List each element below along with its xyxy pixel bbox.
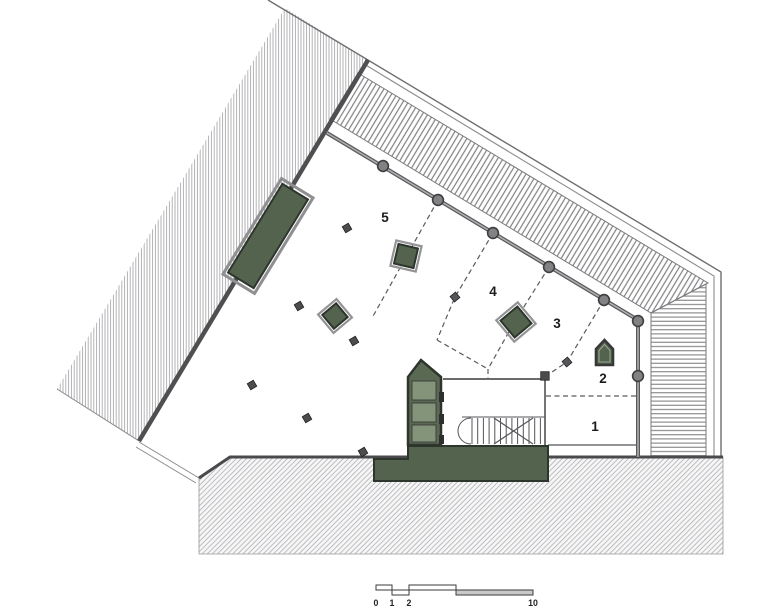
attic-floor-plan-drawing: 5 4 3 2 1 0 1 2 10 [0, 0, 775, 611]
scale-label-10: 10 [528, 598, 538, 608]
scale-segment-2-5 [409, 585, 456, 590]
column [633, 316, 644, 327]
eaves-band-hatch [651, 284, 706, 457]
core-hinge-tab [439, 414, 444, 424]
column [433, 195, 444, 206]
zone-label-5: 5 [381, 210, 389, 225]
skylight-square [390, 240, 421, 271]
core-panel [412, 403, 436, 422]
scale-segment-5-10 [456, 590, 533, 595]
core-panel [412, 381, 436, 400]
zone-label-4: 4 [489, 284, 497, 299]
zone-label-3: 3 [553, 316, 561, 331]
column [488, 228, 499, 239]
scale-label-2: 2 [407, 598, 412, 608]
column [378, 161, 389, 172]
column [633, 371, 644, 382]
scale-label-1: 1 [390, 598, 395, 608]
core-panel [412, 425, 436, 442]
floor-plan-page: 5 4 3 2 1 0 1 2 10 [0, 0, 775, 611]
column [544, 262, 555, 273]
scale-segment-1-2 [392, 590, 409, 595]
core-hinge-tab [439, 435, 444, 444]
zone-label-1: 1 [591, 419, 599, 434]
zone-label-2: 2 [599, 371, 607, 386]
scale-segment-0-1 [376, 585, 392, 590]
core-hinge-tab [439, 392, 444, 402]
scale-label-0: 0 [374, 598, 379, 608]
corner-post [541, 372, 550, 381]
column [599, 295, 610, 306]
